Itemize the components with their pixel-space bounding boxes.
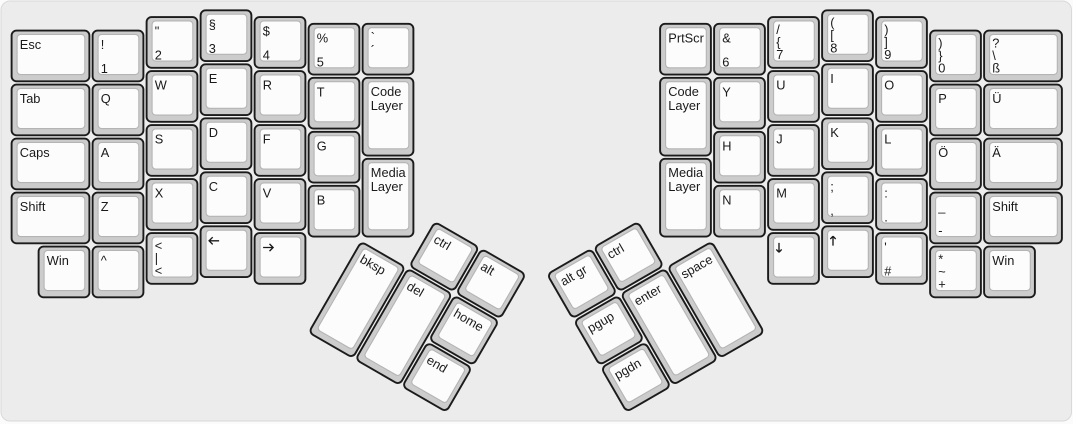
svg-text:Ö: Ö xyxy=(938,145,948,160)
svg-text:Win: Win xyxy=(47,253,69,268)
svg-text:X: X xyxy=(155,186,164,201)
svg-text:^: ^ xyxy=(101,253,107,268)
svg-text:Ü: Ü xyxy=(992,91,1001,106)
svg-text:4: 4 xyxy=(263,48,270,63)
svg-text:V: V xyxy=(263,186,272,201)
svg-text:P: P xyxy=(938,91,947,106)
svg-text:;: ; xyxy=(830,179,834,194)
svg-text::: : xyxy=(884,186,888,201)
svg-text:PrtScr: PrtScr xyxy=(668,30,704,45)
svg-text:T: T xyxy=(317,84,325,99)
svg-text:Z: Z xyxy=(101,199,109,214)
svg-text:": " xyxy=(155,24,160,39)
svg-text:Q: Q xyxy=(101,91,111,106)
svg-text:F: F xyxy=(263,132,271,147)
svg-text:Layer: Layer xyxy=(668,179,701,194)
svg-text:&: & xyxy=(722,30,731,45)
svg-text:Layer: Layer xyxy=(371,98,404,113)
svg-text:Media: Media xyxy=(668,165,704,180)
svg-text:8: 8 xyxy=(830,40,837,55)
svg-text:.: . xyxy=(884,210,888,225)
svg-text:-: - xyxy=(938,223,942,238)
svg-text:G: G xyxy=(317,138,327,153)
svg-text:H: H xyxy=(722,138,731,153)
svg-text:S: S xyxy=(155,132,164,147)
svg-text:!: ! xyxy=(101,37,105,52)
svg-text:R: R xyxy=(263,78,272,93)
svg-text:Caps: Caps xyxy=(20,145,50,160)
svg-text:Code: Code xyxy=(371,84,402,99)
svg-text:7: 7 xyxy=(776,47,783,62)
svg-text:´: ´ xyxy=(371,43,375,58)
svg-text:N: N xyxy=(722,192,731,207)
svg-text:3: 3 xyxy=(209,41,216,56)
svg-text:A: A xyxy=(101,145,110,160)
svg-text:Code: Code xyxy=(668,84,699,99)
svg-text:O: O xyxy=(884,78,894,93)
svg-text:Win: Win xyxy=(992,253,1014,268)
svg-text:U: U xyxy=(776,78,785,93)
svg-text:Tab: Tab xyxy=(20,91,41,106)
svg-text:D: D xyxy=(209,125,218,140)
svg-text:$: $ xyxy=(263,24,270,39)
svg-text:6: 6 xyxy=(722,54,729,69)
svg-text:Esc: Esc xyxy=(20,37,42,52)
svg-text:K: K xyxy=(830,125,839,140)
svg-text:B: B xyxy=(317,192,326,207)
svg-text:M: M xyxy=(776,186,787,201)
svg-text:Shift: Shift xyxy=(992,199,1018,214)
svg-text:Media: Media xyxy=(371,165,407,180)
svg-text:W: W xyxy=(155,78,168,93)
svg-text:,: , xyxy=(830,203,834,218)
svg-text:E: E xyxy=(209,71,218,86)
svg-text:ß: ß xyxy=(992,61,1000,76)
svg-text:#: # xyxy=(884,264,892,279)
svg-text:Layer: Layer xyxy=(668,98,701,113)
svg-text:+: + xyxy=(938,277,945,292)
svg-text:5: 5 xyxy=(317,54,324,69)
svg-text:0: 0 xyxy=(938,61,945,76)
svg-text:1: 1 xyxy=(101,61,108,76)
svg-text:Layer: Layer xyxy=(371,179,404,194)
svg-text:L: L xyxy=(884,132,891,147)
svg-text:%: % xyxy=(317,30,328,45)
svg-text:<: < xyxy=(155,263,162,278)
svg-text:2: 2 xyxy=(155,48,162,63)
svg-text:Ä: Ä xyxy=(992,145,1001,160)
svg-text:I: I xyxy=(830,71,834,86)
svg-text:_: _ xyxy=(937,199,946,214)
svg-text:C: C xyxy=(209,179,218,194)
svg-text:J: J xyxy=(776,132,782,147)
svg-text:§: § xyxy=(209,17,216,32)
svg-text:': ' xyxy=(884,240,886,255)
svg-text:Y: Y xyxy=(722,84,731,99)
svg-text:Shift: Shift xyxy=(20,199,46,214)
svg-text:9: 9 xyxy=(884,47,891,62)
